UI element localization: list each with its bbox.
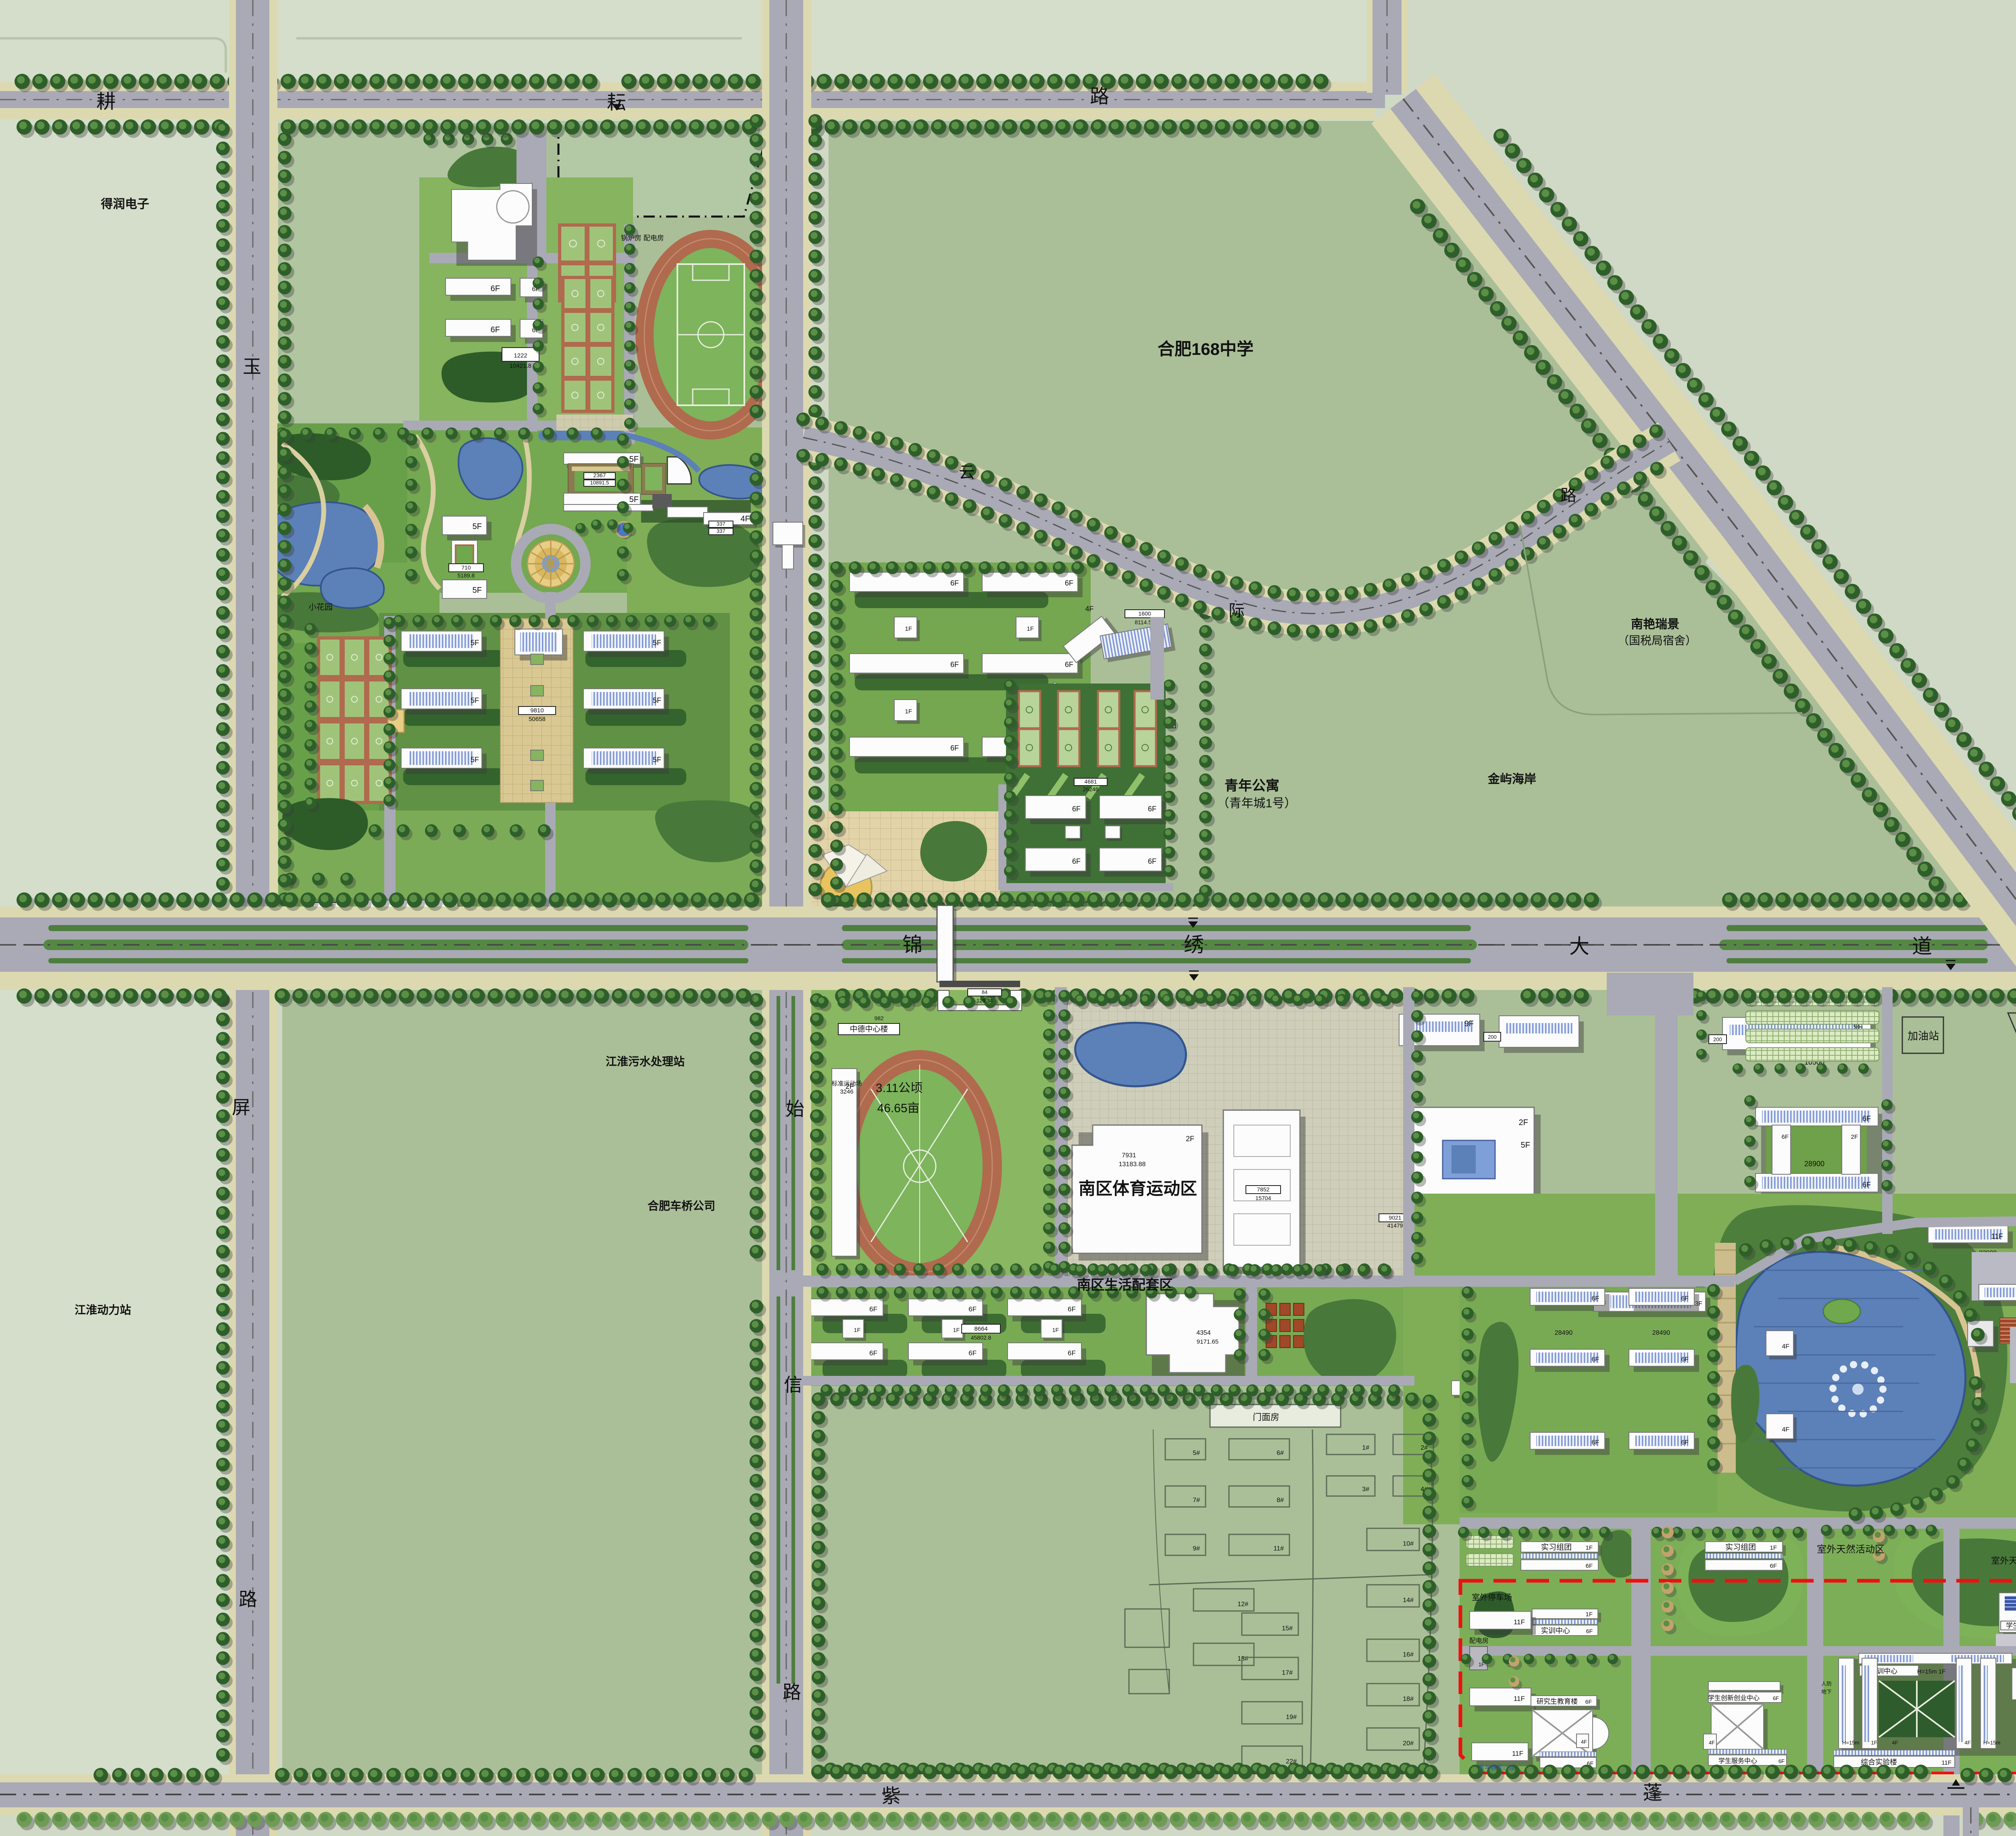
svg-text:江淮动力站: 江淮动力站 bbox=[75, 1304, 131, 1316]
svg-text:1F: 1F bbox=[905, 625, 912, 632]
svg-text:道: 道 bbox=[1912, 935, 1932, 958]
svg-text:1F: 1F bbox=[1585, 1611, 1593, 1618]
svg-text:4F: 4F bbox=[1709, 1740, 1715, 1746]
svg-text:9171.65: 9171.65 bbox=[1197, 1338, 1218, 1345]
svg-text:1F: 1F bbox=[854, 1327, 860, 1333]
svg-text:5#: 5# bbox=[1193, 1450, 1200, 1457]
svg-text:7852: 7852 bbox=[1257, 1186, 1269, 1192]
svg-text:4F: 4F bbox=[1964, 1740, 1970, 1746]
svg-text:6#: 6# bbox=[1277, 1450, 1284, 1457]
svg-text:6F: 6F bbox=[491, 284, 500, 293]
svg-text:6F: 6F bbox=[968, 1305, 977, 1313]
svg-text:H=15m 1F: H=15m 1F bbox=[1917, 1668, 1945, 1675]
svg-text:1#: 1# bbox=[1362, 1444, 1369, 1451]
svg-text:45802.8: 45802.8 bbox=[971, 1334, 991, 1341]
svg-text:710: 710 bbox=[461, 564, 471, 571]
svg-text:6F: 6F bbox=[1681, 1356, 1689, 1363]
svg-text:1F: 1F bbox=[905, 708, 912, 715]
svg-text:26246: 26246 bbox=[1083, 786, 1099, 792]
svg-text:5F: 5F bbox=[1521, 1141, 1530, 1150]
svg-text:41479: 41479 bbox=[1387, 1222, 1403, 1229]
svg-text:17#: 17# bbox=[1282, 1669, 1293, 1676]
svg-text:10#: 10# bbox=[1403, 1540, 1414, 1547]
svg-text:青年公寓: 青年公寓 bbox=[1225, 778, 1279, 794]
svg-text:11F: 11F bbox=[1941, 1759, 1951, 1766]
svg-text:得润电子: 得润电子 bbox=[100, 197, 149, 211]
svg-text:玉: 玉 bbox=[243, 356, 261, 377]
svg-text:际: 际 bbox=[1229, 602, 1245, 620]
svg-text:学生服务中心: 学生服务中心 bbox=[1718, 1757, 1757, 1765]
svg-text:学生创新创业中心: 学生创新创业中心 bbox=[1708, 1694, 1760, 1702]
svg-text:9F: 9F bbox=[1464, 1019, 1474, 1028]
svg-text:地下: 地下 bbox=[1821, 1689, 1832, 1695]
svg-text:6F: 6F bbox=[950, 661, 959, 669]
svg-text:蓬: 蓬 bbox=[1643, 1782, 1662, 1804]
svg-text:1F: 1F bbox=[1871, 1740, 1877, 1746]
svg-text:小花园: 小花园 bbox=[308, 602, 333, 612]
svg-text:9021: 9021 bbox=[1389, 1214, 1401, 1221]
svg-text:6F: 6F bbox=[1773, 1695, 1779, 1701]
svg-text:南区体育运动区: 南区体育运动区 bbox=[1079, 1179, 1197, 1198]
svg-text:11F: 11F bbox=[1514, 1695, 1525, 1703]
svg-text:路: 路 bbox=[239, 1589, 257, 1610]
svg-text:6F: 6F bbox=[1862, 1181, 1871, 1189]
svg-text:H=15m: H=15m bbox=[1842, 1740, 1859, 1746]
svg-text:5F: 5F bbox=[473, 522, 482, 531]
svg-text:6F: 6F bbox=[1781, 1134, 1789, 1140]
svg-text:46.65亩: 46.65亩 bbox=[877, 1102, 919, 1115]
svg-text:4F: 4F bbox=[1581, 1739, 1587, 1745]
svg-text:6F: 6F bbox=[968, 1349, 977, 1357]
svg-text:始: 始 bbox=[786, 1098, 804, 1119]
svg-text:337: 337 bbox=[716, 528, 725, 534]
svg-text:实训中心: 实训中心 bbox=[1541, 1627, 1570, 1635]
svg-text:5F: 5F bbox=[629, 495, 639, 504]
svg-text:6F: 6F bbox=[1591, 1295, 1599, 1302]
svg-text:室外停车场: 室外停车场 bbox=[1472, 1593, 1512, 1602]
svg-text:屏: 屏 bbox=[232, 1097, 250, 1118]
svg-text:（青年城1号）: （青年城1号） bbox=[1217, 797, 1297, 810]
svg-text:中德中心楼: 中德中心楼 bbox=[850, 1025, 888, 1034]
svg-text:6F: 6F bbox=[1681, 1295, 1689, 1302]
svg-text:6F: 6F bbox=[1068, 1349, 1076, 1357]
svg-text:加油站: 加油站 bbox=[1908, 1030, 1939, 1042]
svg-text:11F: 11F bbox=[1991, 1232, 2003, 1240]
svg-text:云: 云 bbox=[959, 464, 975, 481]
svg-text:学生活动中心: 学生活动中心 bbox=[2006, 1622, 2016, 1630]
svg-text:6F: 6F bbox=[1591, 1439, 1599, 1446]
svg-text:6F: 6F bbox=[1591, 1356, 1599, 1363]
svg-text:9810: 9810 bbox=[530, 707, 544, 714]
svg-text:室外天然活动区: 室外天然活动区 bbox=[1817, 1544, 1885, 1555]
svg-text:1F: 1F bbox=[1027, 625, 1034, 632]
svg-text:合肥车桥公司: 合肥车桥公司 bbox=[648, 1199, 715, 1212]
svg-text:信: 信 bbox=[784, 1374, 802, 1395]
svg-text:7931: 7931 bbox=[1122, 1152, 1136, 1159]
svg-text:4681: 4681 bbox=[1084, 778, 1097, 785]
svg-text:路: 路 bbox=[1090, 86, 1109, 107]
svg-text:8#: 8# bbox=[1277, 1497, 1284, 1504]
svg-text:南艳瑞景: 南艳瑞景 bbox=[1631, 617, 1679, 631]
svg-text:6F: 6F bbox=[1586, 1628, 1593, 1634]
svg-text:6F: 6F bbox=[491, 325, 500, 334]
svg-text:28490: 28490 bbox=[1652, 1330, 1670, 1336]
svg-text:1F: 1F bbox=[953, 1327, 960, 1333]
svg-text:12#: 12# bbox=[1237, 1601, 1248, 1608]
svg-text:3246: 3246 bbox=[840, 1088, 853, 1095]
svg-text:2F: 2F bbox=[1186, 1135, 1194, 1143]
svg-text:5F: 5F bbox=[653, 696, 661, 704]
svg-text:锦: 锦 bbox=[902, 934, 923, 956]
svg-text:标准运动场: 标准运动场 bbox=[831, 1080, 862, 1087]
svg-text:6F: 6F bbox=[869, 1305, 877, 1313]
svg-text:青年教师过渡: 青年教师过渡 bbox=[1479, 1764, 1515, 1771]
svg-text:5F: 5F bbox=[473, 586, 482, 595]
svg-text:28490: 28490 bbox=[1555, 1330, 1573, 1336]
svg-text:337: 337 bbox=[716, 521, 725, 527]
svg-text:6F: 6F bbox=[1148, 805, 1156, 813]
svg-text:室外天然活动区: 室外天然活动区 bbox=[1991, 1556, 2016, 1566]
svg-text:200: 200 bbox=[1488, 1034, 1497, 1040]
svg-text:6F: 6F bbox=[1779, 1758, 1785, 1764]
svg-text:6F: 6F bbox=[1068, 1305, 1076, 1313]
svg-text:50658: 50658 bbox=[529, 716, 546, 723]
svg-text:金屿海岸: 金屿海岸 bbox=[1487, 772, 1536, 786]
svg-text:路: 路 bbox=[1560, 487, 1577, 504]
svg-text:大: 大 bbox=[1569, 935, 1589, 958]
svg-text:4F: 4F bbox=[1892, 1740, 1898, 1746]
svg-text:江淮污水处理站: 江淮污水处理站 bbox=[606, 1055, 685, 1068]
svg-text:6F: 6F bbox=[1585, 1698, 1592, 1705]
svg-text:6F: 6F bbox=[1072, 857, 1081, 865]
svg-text:19#: 19# bbox=[1286, 1714, 1297, 1721]
svg-text:5F: 5F bbox=[471, 639, 479, 647]
svg-text:4F: 4F bbox=[1085, 605, 1093, 613]
svg-text:1600: 1600 bbox=[1138, 610, 1151, 617]
svg-text:2F: 2F bbox=[1851, 1134, 1858, 1140]
svg-text:982: 982 bbox=[874, 1015, 884, 1021]
svg-text:11F: 11F bbox=[1514, 1618, 1525, 1626]
svg-text:6F: 6F bbox=[1065, 579, 1073, 587]
svg-text:10421.8: 10421.8 bbox=[510, 363, 531, 369]
svg-text:5F: 5F bbox=[653, 756, 661, 764]
svg-text:6F: 6F bbox=[1862, 1115, 1871, 1123]
svg-text:1F: 1F bbox=[1052, 1327, 1059, 1333]
svg-text:11F: 11F bbox=[1512, 1750, 1523, 1757]
svg-text:人防: 人防 bbox=[1821, 1681, 1832, 1687]
svg-text:绣: 绣 bbox=[1184, 934, 1204, 956]
svg-text:1222: 1222 bbox=[514, 352, 527, 359]
svg-text:200: 200 bbox=[1713, 1036, 1722, 1042]
svg-text:6F: 6F bbox=[950, 579, 959, 587]
svg-text:1F: 1F bbox=[1585, 1544, 1593, 1551]
svg-text:13#: 13# bbox=[1237, 1655, 1248, 1662]
svg-text:6F: 6F bbox=[950, 744, 959, 752]
svg-text:5F: 5F bbox=[471, 756, 479, 764]
svg-text:28900: 28900 bbox=[1804, 1160, 1824, 1168]
svg-text:紫: 紫 bbox=[881, 1786, 901, 1807]
svg-text:11#: 11# bbox=[1273, 1545, 1284, 1552]
svg-text:4354: 4354 bbox=[1196, 1330, 1211, 1336]
svg-text:耕: 耕 bbox=[96, 91, 116, 113]
svg-text:7#: 7# bbox=[1193, 1497, 1200, 1504]
svg-text:合肥168中学: 合肥168中学 bbox=[1158, 340, 1254, 358]
svg-text:10891.5: 10891.5 bbox=[590, 480, 609, 486]
svg-text:18#: 18# bbox=[1403, 1696, 1414, 1703]
svg-text:实习组团: 实习组团 bbox=[1541, 1543, 1572, 1552]
svg-text:2367: 2367 bbox=[593, 472, 606, 479]
svg-text:129.34: 129.34 bbox=[977, 998, 993, 1004]
svg-text:5189.8: 5189.8 bbox=[458, 572, 475, 579]
svg-text:锅炉房 配电房: 锅炉房 配电房 bbox=[621, 234, 664, 242]
svg-text:9#: 9# bbox=[1193, 1545, 1200, 1552]
svg-text:20#: 20# bbox=[1403, 1740, 1414, 1747]
svg-text:84: 84 bbox=[982, 989, 987, 995]
svg-text:实习组团: 实习组团 bbox=[1725, 1543, 1756, 1552]
svg-text:8664: 8664 bbox=[974, 1325, 987, 1332]
svg-text:5F: 5F bbox=[471, 696, 479, 704]
svg-text:15704: 15704 bbox=[1256, 1195, 1271, 1201]
svg-text:5F: 5F bbox=[653, 639, 661, 647]
svg-text:6F: 6F bbox=[1065, 661, 1073, 669]
svg-text:6F: 6F bbox=[1072, 805, 1081, 813]
svg-text:15#: 15# bbox=[1282, 1625, 1293, 1632]
svg-text:门面房: 门面房 bbox=[1253, 1412, 1279, 1422]
svg-text:（国税局宿舍）: （国税局宿舍） bbox=[1618, 634, 1697, 647]
svg-text:14#: 14# bbox=[1403, 1597, 1414, 1604]
svg-text:耘: 耘 bbox=[607, 92, 626, 113]
svg-text:13183.88: 13183.88 bbox=[1119, 1161, 1146, 1168]
svg-text:1F: 1F bbox=[1770, 1544, 1777, 1551]
svg-text:2F: 2F bbox=[1519, 1118, 1528, 1127]
svg-text:6F: 6F bbox=[1681, 1439, 1689, 1446]
svg-text:6F: 6F bbox=[1585, 1563, 1593, 1569]
svg-text:南区生活配套区: 南区生活配套区 bbox=[1077, 1277, 1173, 1293]
svg-text:路: 路 bbox=[783, 1682, 801, 1703]
svg-text:H=15m: H=15m bbox=[1983, 1740, 2000, 1746]
svg-text:4F: 4F bbox=[1782, 1426, 1789, 1433]
svg-text:6F: 6F bbox=[1770, 1563, 1777, 1569]
svg-text:16#: 16# bbox=[1403, 1651, 1414, 1658]
svg-text:3#: 3# bbox=[1362, 1486, 1369, 1493]
svg-text:6F: 6F bbox=[1148, 857, 1156, 865]
svg-text:配电房: 配电房 bbox=[1469, 1637, 1489, 1644]
svg-text:研究生教育楼: 研究生教育楼 bbox=[1537, 1698, 1578, 1705]
svg-text:3.11公顷: 3.11公顷 bbox=[876, 1082, 923, 1095]
svg-text:4F: 4F bbox=[1782, 1343, 1789, 1350]
svg-text:6F: 6F bbox=[869, 1349, 877, 1357]
svg-text:4F: 4F bbox=[741, 515, 750, 523]
